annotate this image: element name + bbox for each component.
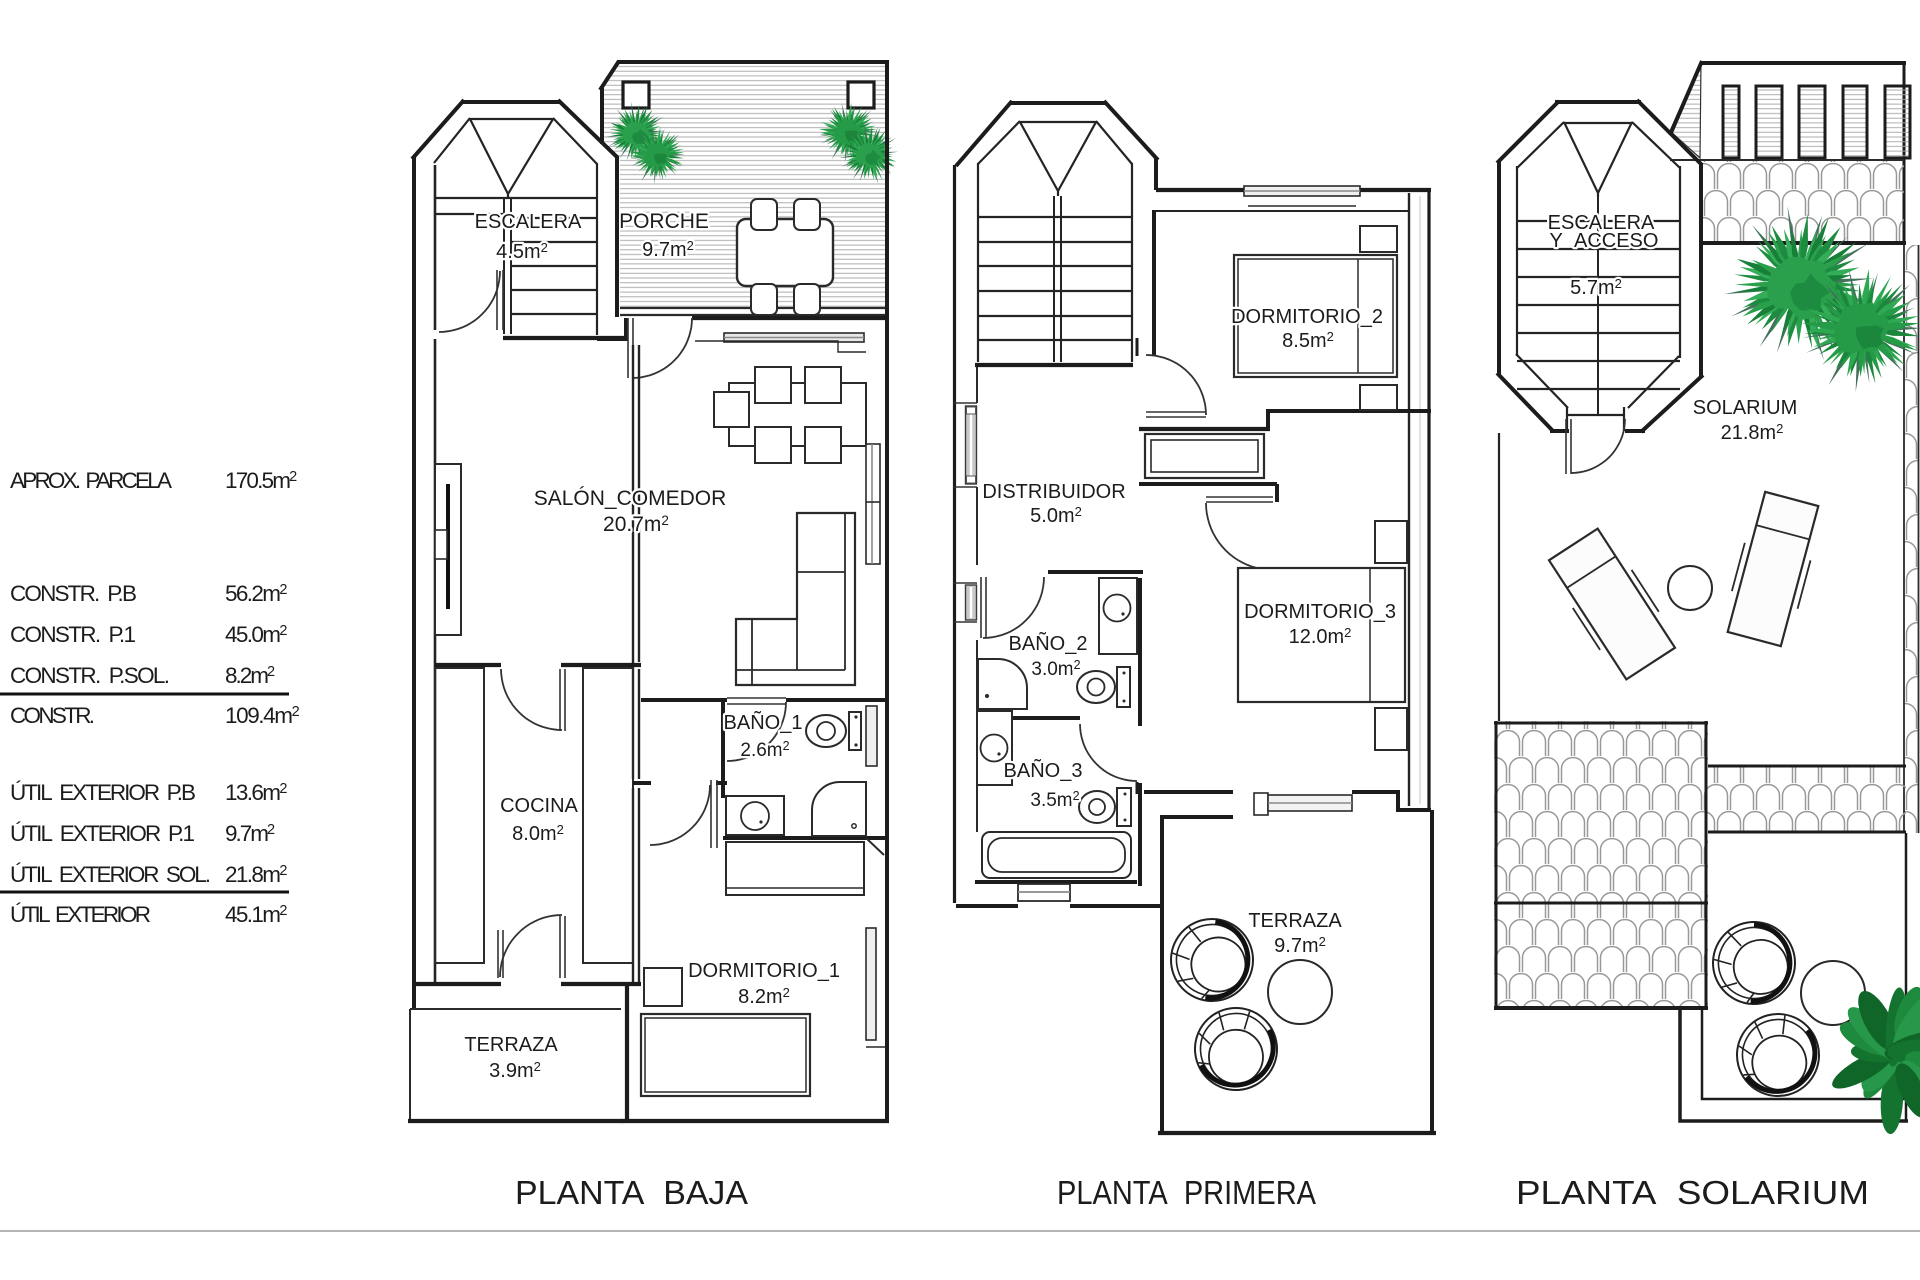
svg-text:BAÑO_1: BAÑO_1 <box>724 710 803 734</box>
svg-text:Y ACCESO: Y ACCESO <box>1550 230 1659 252</box>
svg-text:8.5m2: 8.5m2 <box>1282 329 1334 352</box>
svg-text:DORMITORIO_1: DORMITORIO_1 <box>688 960 840 982</box>
svg-text:20.7m2: 20.7m2 <box>603 513 669 536</box>
svg-text:2.6m2: 2.6m2 <box>740 739 789 761</box>
svg-text:DORMITORIO_2: DORMITORIO_2 <box>1231 306 1383 328</box>
svg-text:SOLARIUM: SOLARIUM <box>1693 397 1797 419</box>
svg-text:21.8m2: 21.8m2 <box>225 862 287 887</box>
svg-text:PLANTA SOLARIUM: PLANTA SOLARIUM <box>1516 1174 1869 1211</box>
svg-text:56.2m2: 56.2m2 <box>225 581 287 606</box>
svg-text:BAÑO_3: BAÑO_3 <box>1004 758 1083 782</box>
svg-text:SALÓN_COMEDOR: SALÓN_COMEDOR <box>534 487 727 510</box>
svg-text:DISTRIBUIDOR: DISTRIBUIDOR <box>982 481 1125 503</box>
svg-text:5.0m2: 5.0m2 <box>1030 504 1082 527</box>
svg-text:ÚTIL EXTERIOR P.B: ÚTIL EXTERIOR P.B <box>10 780 196 805</box>
svg-text:170.5m2: 170.5m2 <box>225 468 297 493</box>
svg-text:5.7m2: 5.7m2 <box>1570 276 1622 299</box>
svg-text:ÚTIL EXTERIOR SOL.: ÚTIL EXTERIOR SOL. <box>10 862 211 887</box>
svg-text:CONSTR.: CONSTR. <box>10 703 95 728</box>
svg-text:9.7m2: 9.7m2 <box>1274 934 1326 957</box>
svg-text:TERRAZA: TERRAZA <box>1248 910 1342 932</box>
svg-text:ÚTIL EXTERIOR P.1: ÚTIL EXTERIOR P.1 <box>10 821 195 846</box>
svg-text:PLANTA BAJA: PLANTA BAJA <box>515 1174 748 1211</box>
svg-text:CONSTR. P.B: CONSTR. P.B <box>10 581 137 606</box>
svg-text:12.0m2: 12.0m2 <box>1289 625 1352 648</box>
svg-text:TERRAZA: TERRAZA <box>464 1034 558 1056</box>
svg-text:ÚTIL EXTERIOR: ÚTIL EXTERIOR <box>10 902 151 927</box>
svg-text:109.4m2: 109.4m2 <box>225 703 300 728</box>
svg-text:BAÑO_2: BAÑO_2 <box>1009 631 1088 655</box>
svg-text:4.5m2: 4.5m2 <box>496 240 548 263</box>
svg-text:8.2m2: 8.2m2 <box>225 663 275 688</box>
svg-text:ESCALERA: ESCALERA <box>475 211 582 233</box>
svg-text:APROX. PARCELA: APROX. PARCELA <box>10 468 172 493</box>
svg-text:13.6m2: 13.6m2 <box>225 780 287 805</box>
svg-text:3.0m2: 3.0m2 <box>1031 658 1080 680</box>
svg-text:8.2m2: 8.2m2 <box>738 985 790 1008</box>
svg-text:3.5m2: 3.5m2 <box>1030 789 1079 811</box>
svg-text:CONSTR. P.1: CONSTR. P.1 <box>10 622 136 647</box>
svg-text:COCINA: COCINA <box>500 795 578 817</box>
svg-text:CONSTR. P.SOL.: CONSTR. P.SOL. <box>10 663 170 688</box>
svg-text:3.9m2: 3.9m2 <box>489 1059 541 1082</box>
svg-text:21.8m2: 21.8m2 <box>1721 421 1784 444</box>
svg-text:DORMITORIO_3: DORMITORIO_3 <box>1244 601 1396 623</box>
svg-text:8.0m2: 8.0m2 <box>512 822 564 845</box>
svg-text:PORCHE: PORCHE <box>619 210 709 233</box>
svg-text:PLANTA PRIMERA: PLANTA PRIMERA <box>1057 1174 1316 1211</box>
svg-text:9.7m2: 9.7m2 <box>225 821 275 846</box>
svg-text:45.1m2: 45.1m2 <box>225 902 287 927</box>
svg-text:9.7m2: 9.7m2 <box>642 238 694 261</box>
svg-text:45.0m2: 45.0m2 <box>225 622 287 647</box>
